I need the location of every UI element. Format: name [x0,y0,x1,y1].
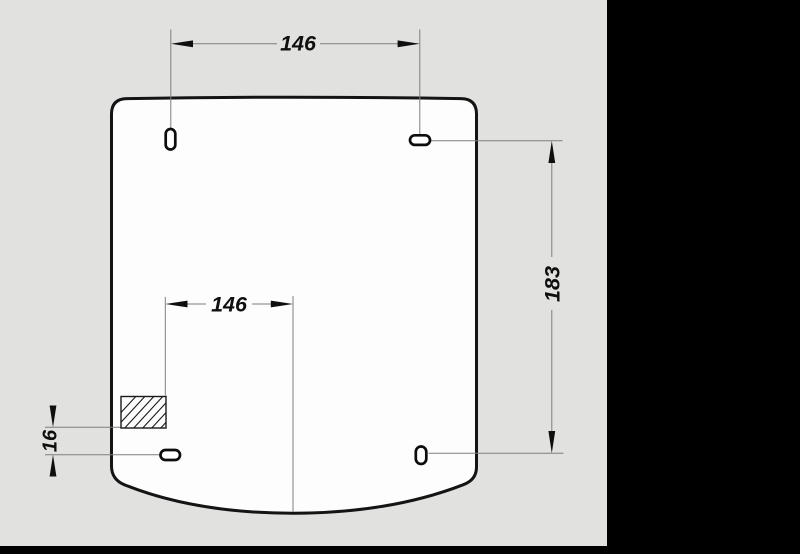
dim-slot-to-center-label: 146 [211,293,248,317]
right-frame-band [607,0,800,554]
dim-hatch-offset-label: 16 [40,429,62,452]
technical-drawing-page: 146 146 183 16 [0,0,800,554]
mounting-slot-top-left [166,129,176,150]
dim-top-width-label: 146 [280,32,317,56]
technical-drawing-canvas: 146 146 183 16 [0,0,800,554]
bottom-frame-band [0,546,607,554]
mounting-slot-bottom-right [416,447,427,465]
mounting-slot-bottom-left [161,450,181,460]
dim-right-height-label: 183 [541,266,565,302]
mounting-slot-top-right [410,135,430,145]
